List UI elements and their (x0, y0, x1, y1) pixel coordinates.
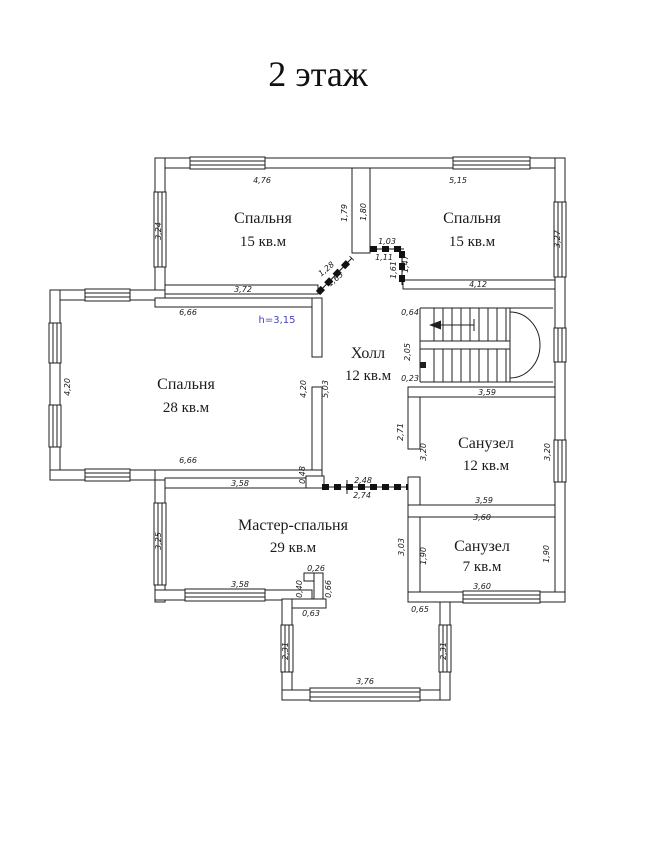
dim-s7-left-outer: 3,03 (397, 538, 406, 556)
dim-master-jog-b: 0,26 (307, 564, 325, 573)
window (49, 405, 61, 447)
dim-tl-left: 3,24 (154, 222, 163, 240)
room-name-master-bedroom: Мастер-спальня (238, 517, 349, 534)
dim-stairs-mid: 2,05 (403, 343, 412, 361)
dim-s7-right: 1,90 (542, 545, 551, 563)
dim-hall-door-a: 2,48 (354, 476, 372, 485)
dim-s7-corner: 0,65 (411, 605, 429, 614)
dim-s7-top: 3,60 (473, 513, 491, 522)
room-name-bathroom-small: Санузел (454, 538, 510, 555)
page-title: 2 этаж (268, 54, 369, 94)
room-name-bedroom-top-right: Спальня (443, 210, 501, 227)
window (190, 157, 265, 169)
room-name-bedroom-top-left: Спальня (234, 210, 292, 227)
window (453, 157, 530, 169)
dim-stairs-top: 0,64 (401, 308, 419, 317)
dim-door-top-a: 1,03 (378, 237, 396, 246)
ceiling-height-note: h=3,15 (259, 315, 296, 326)
room-area-bedroom-top-left: 15 кв.м (240, 234, 287, 250)
stairs-direction-arrow (420, 319, 474, 368)
dim-b28-left: 4,20 (63, 378, 72, 396)
stairs-start-marker (420, 362, 426, 368)
dim-b28-hall-side: 5,03 (321, 380, 330, 398)
room-name-bedroom-left: Спальня (157, 376, 215, 393)
dim-master-top: 3,58 (231, 479, 249, 488)
window (463, 591, 540, 603)
dim-s12-right: 3,20 (543, 443, 552, 461)
room-area-bathroom-large: 12 кв.м (463, 458, 510, 474)
dim-master-jog-d: 0,63 (302, 609, 320, 618)
window (49, 323, 61, 363)
dim-b28-bottom: 6,66 (179, 456, 197, 465)
dim-door-side-a: 1,61 (389, 261, 398, 279)
staircase (420, 308, 553, 382)
window (85, 469, 130, 481)
dim-s7-bottom: 3,60 (473, 582, 491, 591)
dim-master-bottom: 3,58 (231, 580, 249, 589)
room-area-hall: 12 кв.м (345, 368, 392, 384)
window (554, 440, 566, 482)
dim-master-left: 3,25 (154, 532, 163, 550)
dim-balcony-right: 2,31 (439, 642, 448, 660)
dim-s12-bottom: 3,59 (475, 496, 493, 505)
dim-hall-door-b: 2,74 (353, 491, 371, 500)
dim-tr-left: 1,80 (359, 203, 368, 221)
dim-tr-right: 3,27 (553, 229, 562, 248)
dim-tl-top: 4,76 (253, 176, 271, 185)
floor-plan-drawing: 2 этаж (0, 0, 667, 850)
dim-s7-left-inner: 1,90 (419, 547, 428, 565)
room-area-bedroom-top-right: 15 кв.м (449, 234, 496, 250)
dim-master-jog-c: 0,66 (324, 580, 333, 598)
room-name-bathroom-large: Санузел (458, 435, 514, 452)
window (554, 328, 566, 362)
dim-b28-right: 4,20 (299, 380, 308, 398)
dim-tl-right: 1,79 (340, 204, 349, 222)
window (310, 688, 420, 701)
room-area-bedroom-left: 28 кв.м (163, 400, 210, 416)
dim-master-step: 0,48 (298, 466, 307, 484)
dim-s12-left-outer: 2,71 (396, 423, 405, 441)
dim-tr-top: 5,15 (449, 176, 467, 185)
room-area-bathroom-small: 7 кв.м (463, 559, 502, 575)
dim-tl-bottom: 3,72 (234, 285, 252, 294)
window (85, 289, 130, 301)
dim-s12-top: 3,59 (478, 388, 496, 397)
room-area-master-bedroom: 29 кв.м (270, 540, 317, 556)
dim-b28-top: 6,66 (179, 308, 197, 317)
dim-master-jog-a: 0,40 (295, 580, 304, 598)
dim-balcony-left: 2,31 (281, 642, 290, 660)
room-name-hall: Холл (351, 345, 385, 362)
dim-door-top-b: 1,11 (375, 253, 393, 262)
dim-door-side-b: 1,47 (401, 254, 410, 273)
dim-balcony-bottom: 3,76 (356, 677, 374, 686)
window (185, 589, 265, 601)
dim-tr-bottom: 4,12 (469, 280, 487, 289)
dim-s12-left-inner: 3,20 (419, 443, 428, 461)
floor-plan-page: 2 этаж (0, 0, 667, 850)
dim-stairs-bottom: 0,23 (401, 374, 419, 383)
